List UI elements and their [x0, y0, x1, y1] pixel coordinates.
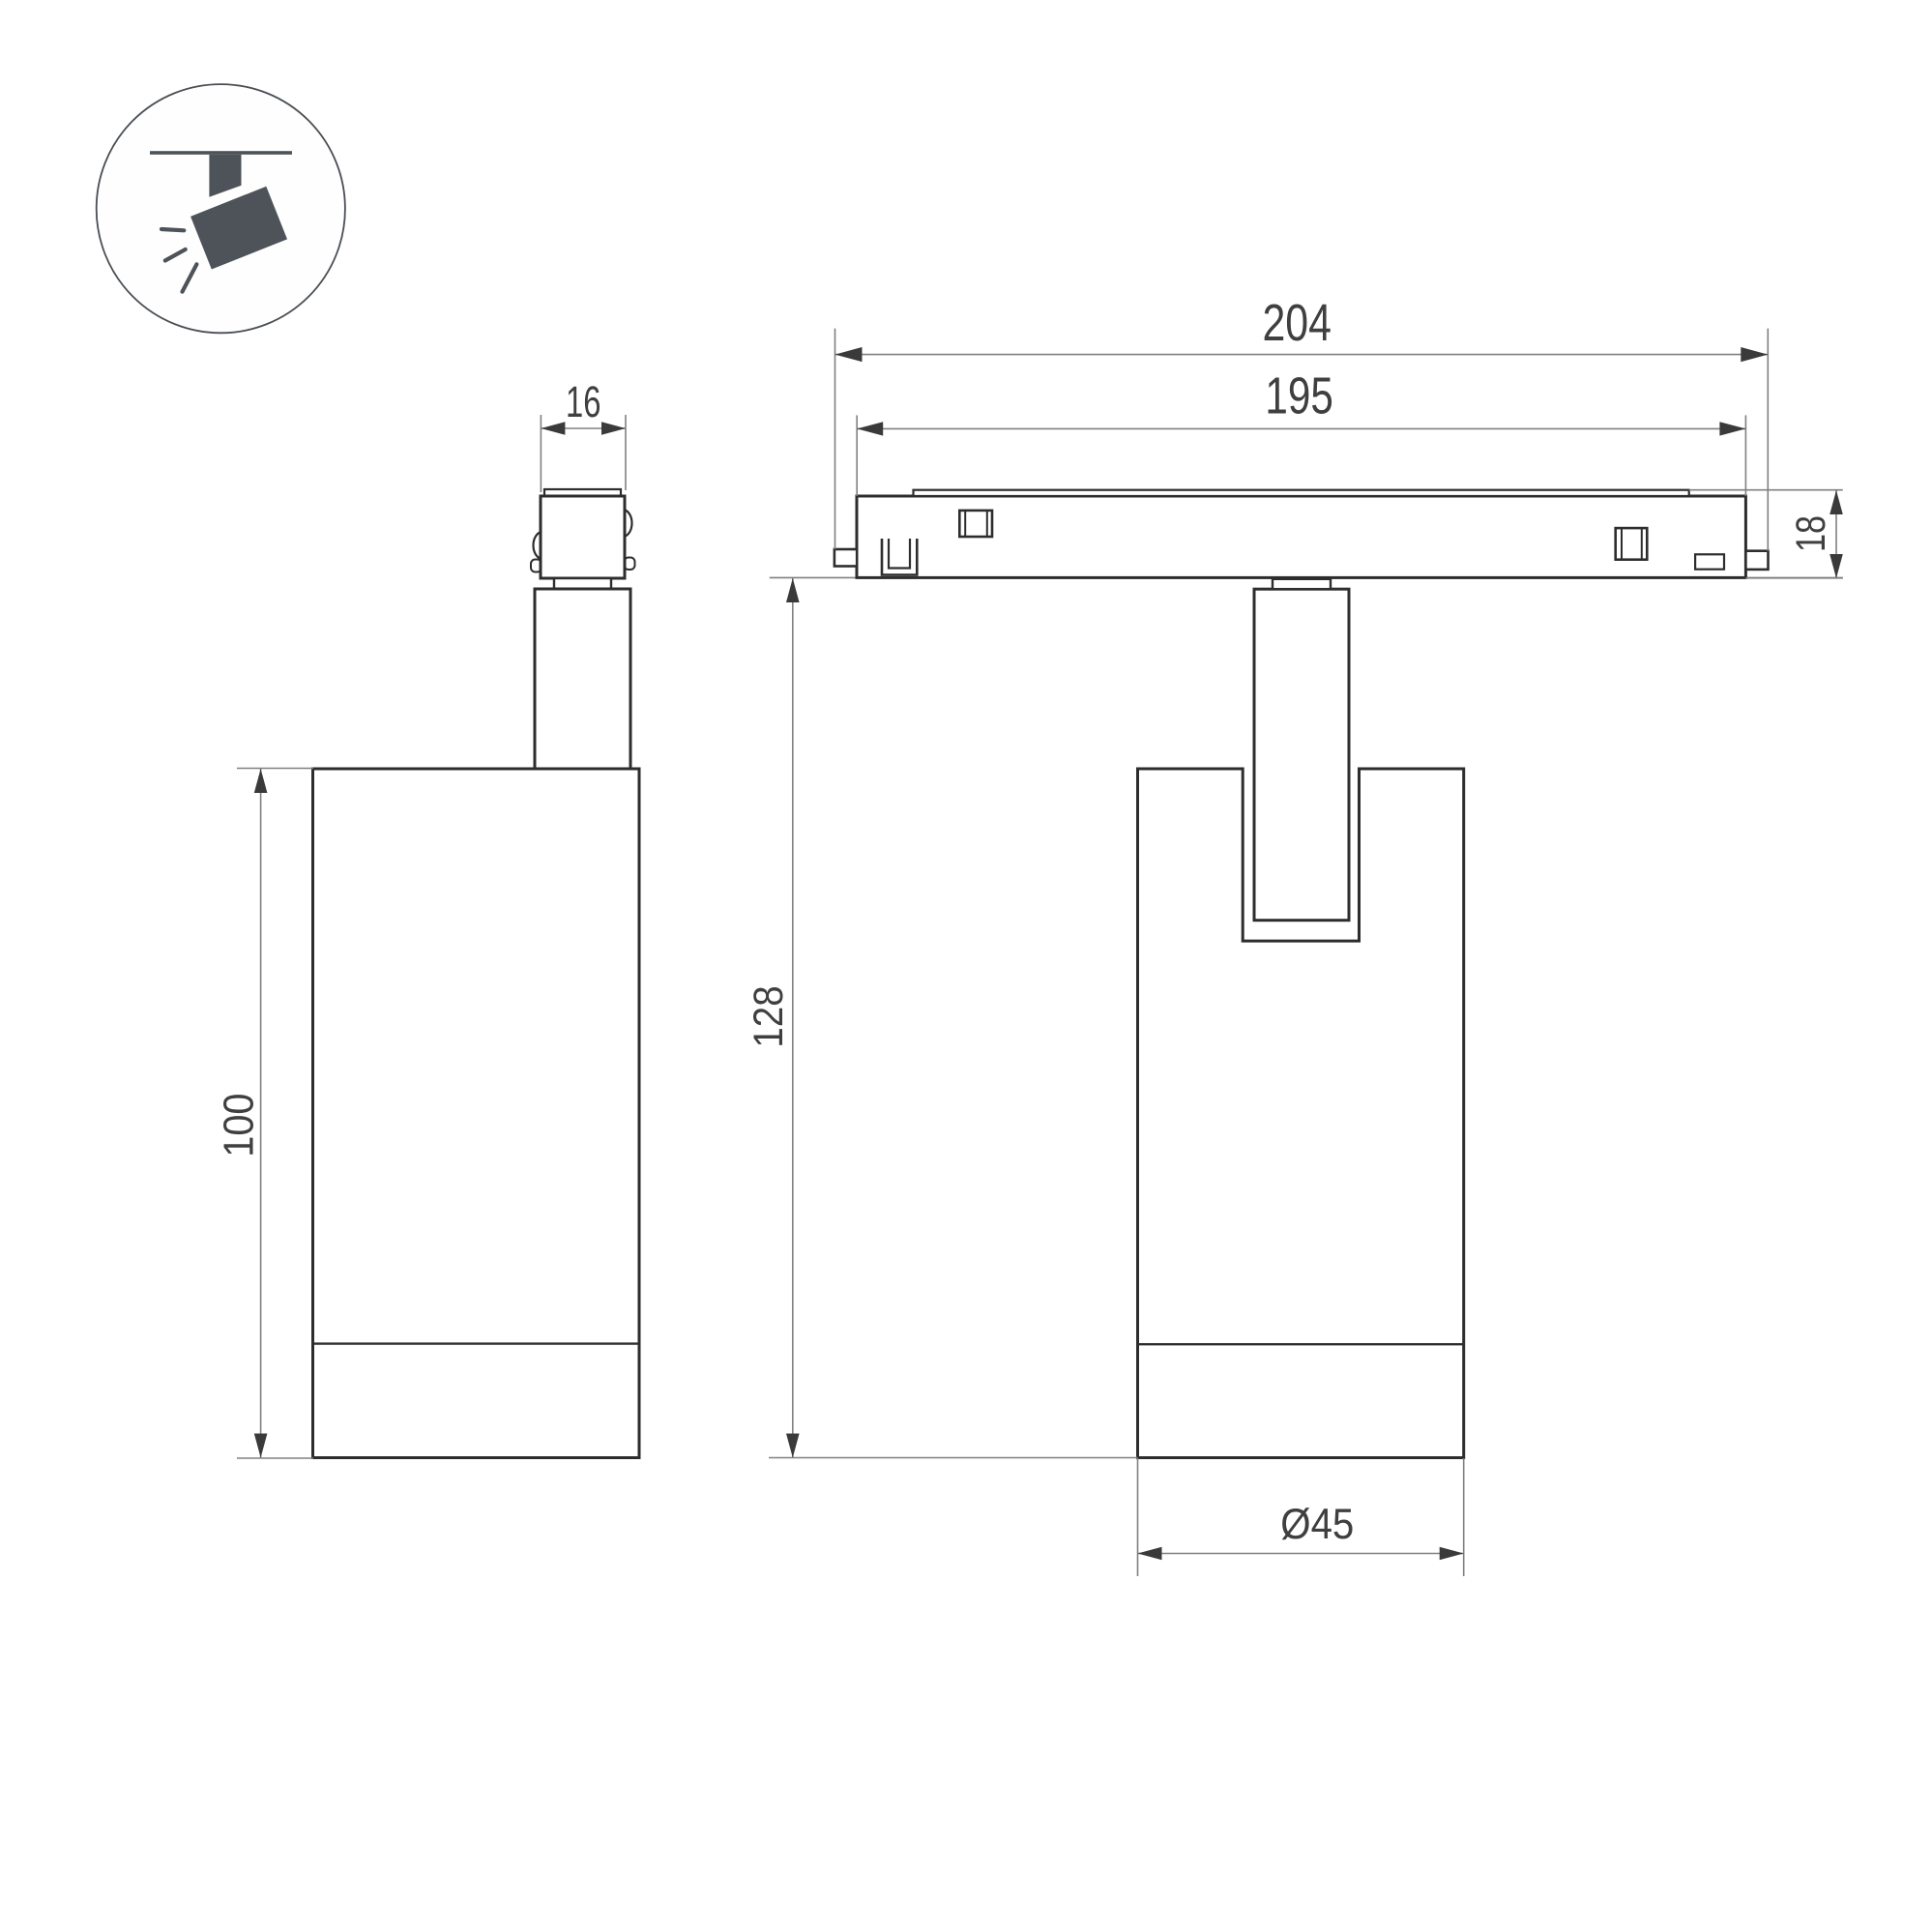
svg-text:16: 16	[566, 377, 601, 426]
svg-text:204: 204	[1262, 294, 1332, 352]
svg-text:100: 100	[216, 1094, 263, 1157]
svg-text:18: 18	[1789, 515, 1834, 552]
svg-text:128: 128	[746, 985, 792, 1047]
svg-text:Ø45: Ø45	[1280, 1501, 1354, 1548]
svg-text:195: 195	[1265, 367, 1333, 425]
